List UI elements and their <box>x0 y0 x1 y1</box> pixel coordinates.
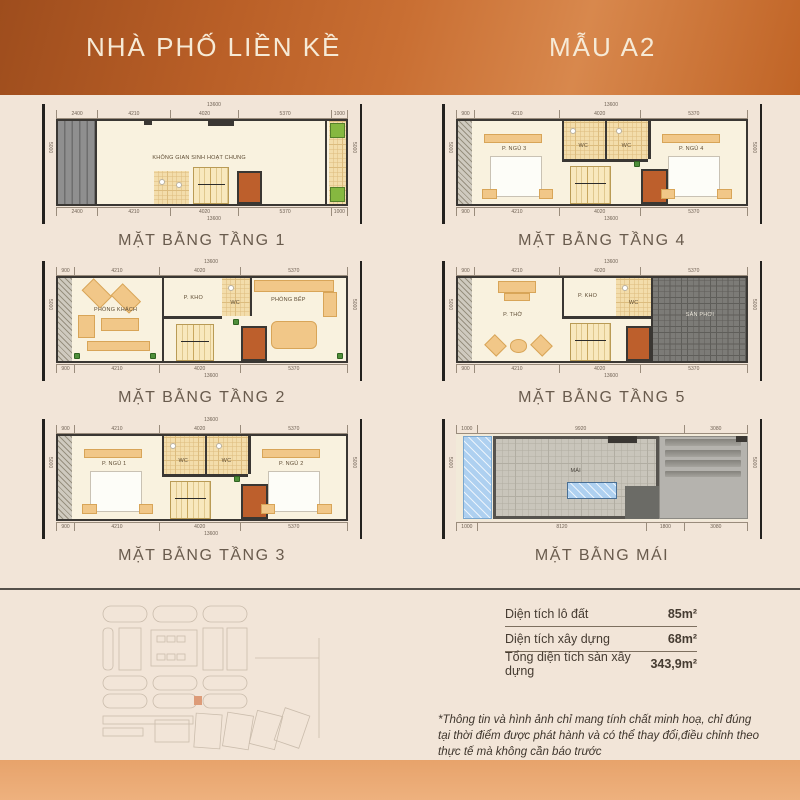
dimension-label: 1000 <box>331 110 348 119</box>
dimension-label: 900 <box>56 267 74 276</box>
staircase <box>193 167 229 204</box>
wall <box>325 121 328 204</box>
dimension-label: 5000 <box>751 457 757 468</box>
roof-block <box>625 486 659 519</box>
dimension-label: 2400 <box>56 207 97 216</box>
room-label: P. NGỦ 3 <box>502 146 526 152</box>
dimension-label: 4020 <box>170 110 239 119</box>
sofa <box>87 341 150 351</box>
dimension-label: 5370 <box>640 207 748 216</box>
roof-louver <box>665 471 741 478</box>
dimension-label: 13600 <box>474 259 748 266</box>
wall <box>562 121 565 159</box>
nightstand <box>482 189 496 199</box>
toilet-fixture <box>228 285 234 291</box>
room-label: P. KHO <box>578 293 597 299</box>
room-label: PHÒNG KHÁCH <box>94 307 137 313</box>
roof-louver <box>665 460 741 467</box>
dimension-bottom: 900 4210 4020 5370 13600 <box>56 364 348 381</box>
dimension-label: 4210 <box>74 522 159 531</box>
plan-caption: MẶT BẰNG TẦNG 5 <box>442 389 762 407</box>
front-balcony <box>58 278 72 361</box>
dimension-label: 5370 <box>240 364 348 373</box>
dimension-label: 4020 <box>559 207 640 216</box>
floorplan-canvas-tang4: P. NGỦ 3 WC WC P. NGỦ 4 <box>456 119 748 206</box>
plant <box>74 353 80 359</box>
boundary-line <box>760 104 763 224</box>
floorplan-canvas-mai: MÁI <box>456 434 748 521</box>
floorplan-figure-tang3: 13600 900 4210 4020 5370 P. NGỦ 1 WC WC <box>42 417 362 567</box>
boundary-line <box>760 261 763 381</box>
floorplan-figure-tang1: 13600 2400 4210 4020 5370 1000 KHÔNG GIA… <box>42 102 362 252</box>
nightstand <box>82 504 96 514</box>
wall <box>162 316 222 319</box>
masterplan-minimap <box>95 598 331 756</box>
project-title: NHÀ PHỐ LIỀN KỀ <box>86 32 341 63</box>
dimension-label: 900 <box>56 425 74 434</box>
staircase <box>176 324 213 361</box>
plan-caption: MẶT BẰNG MÁI <box>442 547 762 565</box>
floorplan-figure-tang5: 13600 900 4210 4020 5370 P. THỜ P. KHO W… <box>442 259 762 409</box>
dimension-label: 4020 <box>170 207 239 216</box>
wc-area <box>162 436 205 474</box>
dimension-label: 4210 <box>74 267 159 276</box>
dimension-label: 5000 <box>447 299 453 310</box>
dimension-label: 4020 <box>159 425 240 434</box>
dimension-label: 13600 <box>97 216 331 223</box>
wall <box>248 436 251 474</box>
dimension-label: 5370 <box>238 207 330 216</box>
room-label: WC <box>622 143 632 149</box>
room-label: WC <box>178 458 188 464</box>
wall <box>162 278 165 361</box>
dresser <box>262 449 320 457</box>
highlighted-lot-marker <box>194 696 202 705</box>
toilet-fixture <box>622 285 628 291</box>
bed <box>268 471 320 513</box>
room-label: SÂN PHƠI <box>686 312 714 318</box>
dimension-bottom: 900 4210 4020 5370 13600 <box>456 364 748 381</box>
info-value: 343,9m² <box>650 657 697 671</box>
section-divider <box>0 588 800 590</box>
staircase <box>570 166 610 204</box>
floorplan-canvas-tang2: PHÒNG KHÁCH P. KHO WC PHÒNG BẾP <box>56 276 348 363</box>
dimension-label: 1000 <box>331 207 348 216</box>
dimension-label: 4020 <box>559 267 640 276</box>
boundary-line <box>42 104 45 224</box>
dimension-label: 4020 <box>559 364 640 373</box>
wall-notch <box>208 121 234 126</box>
dimension-label: 13600 <box>74 373 348 380</box>
info-value: 85m² <box>668 607 697 621</box>
wall-notch <box>144 121 151 125</box>
dining-table <box>271 321 317 349</box>
floorplan-figure-mai: 1000 9920 3080 MÁI 1000 8120 1800 3080 5… <box>442 417 762 567</box>
sink-fixture <box>170 443 176 449</box>
dimension-label: 4020 <box>559 110 640 119</box>
dresser <box>84 449 142 457</box>
staircase <box>570 323 610 361</box>
sloped-roof <box>659 436 748 520</box>
nightstand <box>539 189 553 199</box>
dimension-label: 5370 <box>640 110 748 119</box>
altar-table <box>498 281 535 293</box>
kitchen-counter <box>254 280 335 292</box>
staircase <box>170 481 210 519</box>
dimension-label: 5000 <box>351 142 357 153</box>
wall <box>605 121 608 159</box>
plant <box>234 476 240 482</box>
boundary-line <box>442 419 445 539</box>
dimension-label: 900 <box>456 364 474 373</box>
model-title: MẪU A2 <box>549 32 656 63</box>
wall <box>562 278 565 316</box>
garage-area <box>58 121 97 204</box>
front-balcony <box>458 121 472 204</box>
info-label: Diện tích xây dựng <box>505 632 610 646</box>
dimension-label: 5370 <box>640 267 748 276</box>
info-label: Tổng diện tích sàn xây dựng <box>505 650 650 678</box>
bed <box>490 156 542 198</box>
boundary-line <box>442 261 445 381</box>
dimension-label: 4210 <box>474 267 559 276</box>
dimension-label: 4210 <box>97 207 169 216</box>
roof-louver <box>665 450 741 457</box>
plant <box>337 353 343 359</box>
boundary-line <box>360 261 363 381</box>
info-label: Diện tích lô đất <box>505 607 588 621</box>
skylight <box>567 482 617 499</box>
info-value: 68m² <box>668 632 697 646</box>
disclaimer-text: *Thông tin và hình ảnh chỉ mang tính chấ… <box>438 712 766 760</box>
dresser <box>662 134 720 142</box>
floor-cushion <box>530 334 553 357</box>
front-balcony <box>58 436 72 519</box>
dimension-label: 13600 <box>474 216 748 223</box>
dimension-label: 4020 <box>159 267 240 276</box>
boundary-line <box>42 261 45 381</box>
table-row: Tổng diện tích sàn xây dựng 343,9m² <box>505 652 697 676</box>
dimension-top: 13600 2400 4210 4020 5370 1000 <box>56 102 348 119</box>
dimension-label: 5370 <box>240 425 348 434</box>
plan-caption: MẶT BẰNG TẦNG 3 <box>42 547 362 565</box>
floor-cushion <box>510 339 527 352</box>
sofa <box>78 315 95 338</box>
dimension-label: 13600 <box>74 259 348 266</box>
plan-caption: MẶT BẰNG TẦNG 4 <box>442 232 762 250</box>
drying-yard <box>653 278 746 361</box>
dimension-bottom: 1000 8120 1800 3080 <box>456 522 748 531</box>
toilet-fixture <box>159 179 165 185</box>
wall <box>562 316 651 319</box>
dimension-label: 5000 <box>47 457 53 468</box>
room-label: WC <box>230 300 240 306</box>
glass-canopy <box>463 436 492 520</box>
dimension-label: 4210 <box>97 110 169 119</box>
dimension-label: 5000 <box>47 299 53 310</box>
wc-area <box>222 278 249 316</box>
nightstand <box>661 189 675 199</box>
room-label: P. NGỦ 4 <box>679 146 703 152</box>
floorplan-canvas-tang3: P. NGỦ 1 WC WC P. NGỦ 2 <box>56 434 348 521</box>
dimension-label: 1000 <box>456 425 477 434</box>
dimension-label: 4210 <box>74 425 159 434</box>
wc-area <box>605 121 648 159</box>
dimension-top: 13600 900 4210 4020 5370 <box>56 259 348 276</box>
boundary-line <box>360 104 363 224</box>
bathroom-area <box>154 171 189 204</box>
dimension-top: 13600 900 4210 4020 5370 <box>56 417 348 434</box>
roof-louver <box>665 439 741 446</box>
nightstand <box>717 189 731 199</box>
nightstand <box>139 504 153 514</box>
floorplan-figure-tang4: 13600 900 4210 4020 5370 P. NGỦ 3 WC WC <box>442 102 762 252</box>
dimension-bottom: 900 4210 4020 5370 13600 <box>456 207 748 224</box>
dimension-label: 5370 <box>240 522 348 531</box>
plan-caption: MẶT BẰNG TẦNG 1 <box>42 232 362 250</box>
boundary-line <box>760 419 763 539</box>
coffee-table <box>101 318 138 331</box>
boundary-line <box>42 419 45 539</box>
floorplan-figure-tang2: 13600 900 4210 4020 5370 PHÒNG KHÁCH P. … <box>42 259 362 409</box>
bed <box>668 156 720 198</box>
armchair <box>82 278 112 308</box>
dimension-label: 4020 <box>159 364 240 373</box>
dimension-label: 13600 <box>474 102 748 109</box>
room-label: PHÒNG BẾP <box>271 297 306 303</box>
dimension-label: 2400 <box>56 110 97 119</box>
dimension-label: 13600 <box>97 102 331 109</box>
wc-area <box>562 121 605 159</box>
dimension-label: 900 <box>56 364 74 373</box>
table-row: Diện tích lô đất 85m² <box>505 602 697 627</box>
dimension-top: 1000 9920 3080 <box>456 425 748 434</box>
wc-area <box>205 436 248 474</box>
dimension-top: 13600 900 4210 4020 5370 <box>456 259 748 276</box>
dimension-label: 4020 <box>159 522 240 531</box>
dimension-label: 4210 <box>474 207 559 216</box>
dimension-label: 5000 <box>751 299 757 310</box>
bed <box>90 471 142 513</box>
room-label: P. NGỦ 1 <box>102 461 126 467</box>
boundary-line <box>360 419 363 539</box>
dimension-label: 900 <box>456 110 474 119</box>
footer-strip <box>0 760 800 800</box>
sink-fixture <box>570 128 576 134</box>
dimension-label: 4210 <box>474 364 559 373</box>
elevator-shaft <box>241 326 267 361</box>
dimension-label: 5000 <box>351 457 357 468</box>
altar-table <box>504 293 530 301</box>
dimension-label: 9920 <box>477 425 684 434</box>
dimension-label: 13600 <box>474 373 748 380</box>
table-row: Diện tích xây dựng 68m² <box>505 627 697 652</box>
dimension-label: 13600 <box>74 417 348 424</box>
front-balcony <box>458 278 472 361</box>
kitchen-counter <box>323 292 337 317</box>
elevator-shaft <box>237 171 263 204</box>
dimension-label: 5000 <box>447 457 453 468</box>
roof-vent <box>736 436 746 442</box>
floor-cushion <box>484 334 507 357</box>
dimension-label: 900 <box>56 522 74 531</box>
room-label: WC <box>578 143 588 149</box>
elevator-shaft <box>626 326 650 361</box>
dimension-label: 5000 <box>351 299 357 310</box>
dimension-label: 1800 <box>646 522 684 531</box>
header-banner: NHÀ PHỐ LIỀN KỀ MẪU A2 <box>0 0 800 95</box>
wall <box>162 436 165 474</box>
dimension-label: 3080 <box>684 522 748 531</box>
plan-caption: MẶT BẰNG TẦNG 2 <box>42 389 362 407</box>
room-label: P. NGỦ 2 <box>279 461 303 467</box>
dimension-bottom: 900 4210 4020 5370 13600 <box>56 522 348 539</box>
dimension-bottom: 2400 4210 4020 5370 1000 13600 <box>56 207 348 224</box>
dimension-label: 8120 <box>477 522 646 531</box>
area-info-table: Diện tích lô đất 85m² Diện tích xây dựng… <box>505 602 697 676</box>
plant <box>233 319 239 325</box>
wall <box>648 121 651 159</box>
planter <box>330 187 344 202</box>
room-label: WC <box>629 300 639 306</box>
room-label: KHÔNG GIAN SINH HOẠT CHUNG <box>152 155 245 161</box>
wall <box>205 436 208 474</box>
planter <box>330 123 344 138</box>
dimension-label: 13600 <box>74 531 348 538</box>
room-label: MÁI <box>571 468 581 474</box>
room-label: P. KHO <box>184 295 203 301</box>
dresser <box>484 134 542 142</box>
roof-vent <box>608 436 637 443</box>
dimension-label: 5000 <box>447 142 453 153</box>
dimension-label: 900 <box>456 267 474 276</box>
dimension-label: 5370 <box>238 110 330 119</box>
dimension-label: 5370 <box>240 267 348 276</box>
boundary-line <box>442 104 445 224</box>
room-label: P. THỜ <box>503 312 522 318</box>
dimension-label: 5000 <box>47 142 53 153</box>
dimension-label: 900 <box>456 207 474 216</box>
dimension-label: 5370 <box>640 364 748 373</box>
dimension-label: 4210 <box>474 110 559 119</box>
floorplan-canvas-tang5: P. THỜ P. KHO WC SÂN PHƠI <box>456 276 748 363</box>
plant <box>634 161 640 167</box>
dimension-top: 13600 900 4210 4020 5370 <box>456 102 748 119</box>
nightstand <box>261 504 275 514</box>
dimension-label: 1000 <box>456 522 477 531</box>
plant <box>150 353 156 359</box>
room-label: WC <box>222 458 232 464</box>
wall <box>250 278 253 316</box>
dimension-label: 4210 <box>74 364 159 373</box>
nightstand <box>317 504 331 514</box>
dimension-label: 5000 <box>751 142 757 153</box>
dimension-label: 3080 <box>684 425 748 434</box>
wc-area <box>616 278 651 316</box>
floorplan-canvas-tang1: KHÔNG GIAN SINH HOẠT CHUNG <box>56 119 348 206</box>
